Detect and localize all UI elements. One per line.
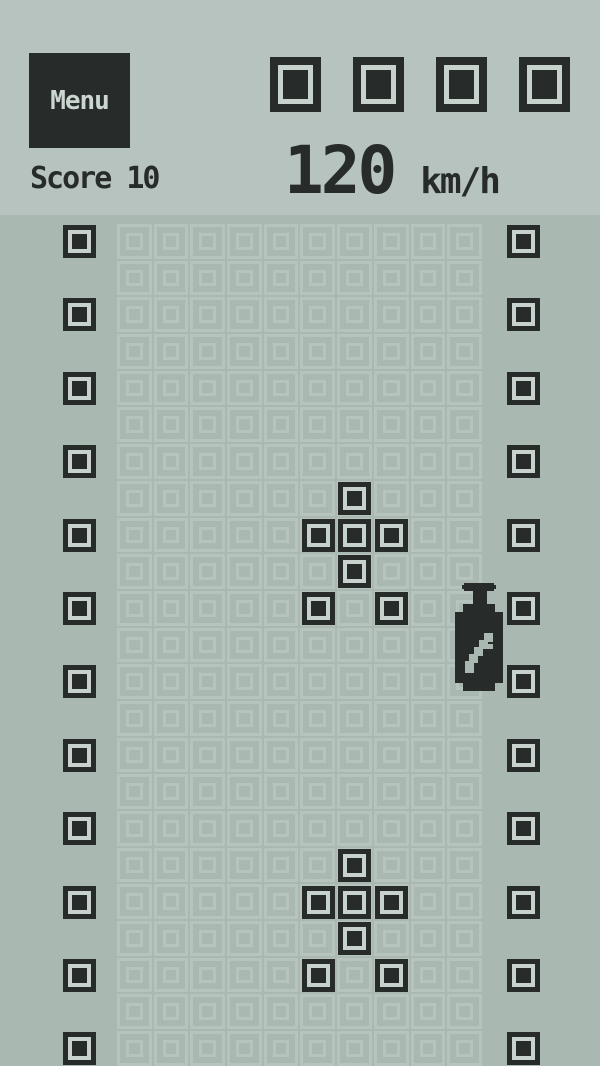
grid-cell <box>263 517 300 554</box>
grid-cell <box>446 773 483 810</box>
grid-cell <box>116 406 153 443</box>
grid-cell <box>226 260 263 297</box>
grid-cell <box>116 993 153 1030</box>
grid-cell <box>299 480 336 517</box>
grid-cell <box>336 1030 373 1066</box>
grid-cell <box>446 1030 483 1066</box>
grid-cell <box>226 296 263 333</box>
grid-cell <box>410 663 447 700</box>
grid-cell <box>153 223 190 260</box>
grid-cell <box>153 1030 190 1066</box>
grid-cell <box>226 957 263 994</box>
grid-cell <box>189 627 226 664</box>
grid-cell <box>189 1030 226 1066</box>
grid-cell <box>189 847 226 884</box>
grid-cell <box>299 333 336 370</box>
grid-cell <box>263 883 300 920</box>
wall-block <box>63 519 96 552</box>
grid-cell <box>373 920 410 957</box>
car-upper-block <box>302 592 335 625</box>
grid-cell <box>263 700 300 737</box>
grid-cell <box>336 443 373 480</box>
grid-cell <box>263 920 300 957</box>
grid-cell <box>336 957 373 994</box>
grid-cell <box>189 517 226 554</box>
grid-cell <box>263 260 300 297</box>
wall-block <box>63 372 96 405</box>
car-upper-block <box>338 555 371 588</box>
game-screen: Menu Score 10 120 km/h <box>0 0 600 1066</box>
grid-cell <box>189 920 226 957</box>
grid-cell <box>153 737 190 774</box>
grid-cell <box>189 296 226 333</box>
grid-cell <box>410 847 447 884</box>
grid-cell <box>116 443 153 480</box>
grid-cell <box>336 627 373 664</box>
grid-cell <box>263 810 300 847</box>
grid-cell <box>189 883 226 920</box>
grid-cell <box>299 406 336 443</box>
wall-block <box>63 959 96 992</box>
grid-cell <box>189 480 226 517</box>
grid-cell <box>336 333 373 370</box>
wall-block <box>63 445 96 478</box>
grid-cell <box>410 737 447 774</box>
grid-cell <box>446 517 483 554</box>
grid-cell <box>153 847 190 884</box>
grid-cell <box>116 370 153 407</box>
grid-cell <box>116 1030 153 1066</box>
grid-cell <box>116 847 153 884</box>
grid-cell <box>116 296 153 333</box>
grid-cell <box>336 993 373 1030</box>
speed-value: 120 <box>284 138 394 204</box>
grid-cell <box>153 260 190 297</box>
grid-cell <box>373 993 410 1030</box>
grid-cell <box>226 993 263 1030</box>
grid-cell <box>336 590 373 627</box>
grid-cell <box>446 480 483 517</box>
speed-display: 120 km/h <box>284 138 499 204</box>
grid-cell <box>263 663 300 700</box>
grid-cell <box>263 370 300 407</box>
grid-cell <box>373 406 410 443</box>
grid-cell <box>226 627 263 664</box>
grid-cell <box>336 810 373 847</box>
grid-cell <box>189 553 226 590</box>
grid-cell <box>263 993 300 1030</box>
grid-cell <box>189 333 226 370</box>
grid-cell <box>410 223 447 260</box>
grid-cell <box>373 223 410 260</box>
car-lower-block <box>302 886 335 919</box>
grid-cell <box>153 296 190 333</box>
grid-cell <box>116 663 153 700</box>
grid-cell <box>410 993 447 1030</box>
grid-cell <box>336 370 373 407</box>
grid-cell <box>299 443 336 480</box>
grid-cell <box>373 663 410 700</box>
grid-cell <box>446 443 483 480</box>
grid-cell <box>446 406 483 443</box>
grid-cell <box>226 847 263 884</box>
grid-cell <box>446 810 483 847</box>
car-lower-block <box>338 886 371 919</box>
grid-cell <box>410 1030 447 1066</box>
grid-cell <box>446 847 483 884</box>
grid-cell <box>189 663 226 700</box>
car-upper-block <box>338 482 371 515</box>
lives <box>270 57 570 112</box>
grid-cell <box>373 480 410 517</box>
grid-cell <box>263 296 300 333</box>
grid-cell <box>299 920 336 957</box>
grid-cell <box>373 627 410 664</box>
grid-cell <box>153 663 190 700</box>
grid-cell <box>263 480 300 517</box>
grid-cell <box>116 957 153 994</box>
wall-block <box>507 665 540 698</box>
grid-cell <box>116 920 153 957</box>
car-upper-block <box>375 519 408 552</box>
grid-cell <box>153 773 190 810</box>
grid-cell <box>116 627 153 664</box>
grid-cell <box>153 627 190 664</box>
grid-cell <box>153 480 190 517</box>
life-icon <box>519 57 570 112</box>
grid-cell <box>299 847 336 884</box>
grid-cell <box>263 1030 300 1066</box>
grid-cell <box>446 333 483 370</box>
wall-block <box>63 812 96 845</box>
grid-cell <box>446 370 483 407</box>
wall-block <box>507 1032 540 1065</box>
grid-cell <box>410 700 447 737</box>
grid-cell <box>116 553 153 590</box>
life-icon <box>270 57 321 112</box>
grid-cell <box>336 773 373 810</box>
grid-cell <box>189 443 226 480</box>
grid-cell <box>189 957 226 994</box>
grid-cell <box>299 993 336 1030</box>
car-lower-block <box>338 849 371 882</box>
grid-cell <box>263 773 300 810</box>
wall-block <box>63 886 96 919</box>
wall-block <box>507 886 540 919</box>
grid-cell <box>226 737 263 774</box>
grid-cell <box>153 406 190 443</box>
grid-cell <box>373 737 410 774</box>
grid-cell <box>153 920 190 957</box>
grid-cell <box>410 883 447 920</box>
grid-cell <box>446 700 483 737</box>
grid-cell <box>189 223 226 260</box>
grid-cell <box>153 700 190 737</box>
grid-cell <box>410 443 447 480</box>
grid-cell <box>153 810 190 847</box>
grid-cell <box>116 517 153 554</box>
grid-cell <box>336 700 373 737</box>
grid-cell <box>373 700 410 737</box>
grid-cell <box>410 260 447 297</box>
wall-block <box>507 445 540 478</box>
grid-cell <box>336 406 373 443</box>
grid-cell <box>373 443 410 480</box>
grid-cell <box>373 553 410 590</box>
grid-cell <box>410 957 447 994</box>
menu-button[interactable]: Menu <box>29 53 130 148</box>
wall-block <box>507 592 540 625</box>
car-lower-block <box>375 959 408 992</box>
grid-cell <box>153 883 190 920</box>
grid-cell <box>373 260 410 297</box>
grid-cell <box>226 333 263 370</box>
grid-cell <box>116 333 153 370</box>
grid-cell <box>116 590 153 627</box>
grid-cell <box>116 773 153 810</box>
grid-cell <box>189 737 226 774</box>
grid-cell <box>299 1030 336 1066</box>
grid-cell <box>299 627 336 664</box>
grid-cell <box>410 810 447 847</box>
grid-cell <box>446 260 483 297</box>
life-icon <box>353 57 404 112</box>
grid-cell <box>263 627 300 664</box>
grid-cell <box>446 883 483 920</box>
grid-cell <box>116 700 153 737</box>
grid-cell <box>336 223 373 260</box>
speed-unit-label: km/h <box>420 164 499 200</box>
grid-cell <box>153 517 190 554</box>
grid-cell <box>336 260 373 297</box>
grid-cell <box>153 370 190 407</box>
grid-cell <box>410 517 447 554</box>
grid-cell <box>226 553 263 590</box>
grid-cell <box>263 553 300 590</box>
nitro-bottle-icon <box>455 581 503 692</box>
wall-block <box>63 225 96 258</box>
grid-cell <box>226 810 263 847</box>
grid-cell <box>446 920 483 957</box>
grid-cell <box>189 993 226 1030</box>
grid-cell <box>263 590 300 627</box>
grid-cell <box>226 517 263 554</box>
grid-cell <box>446 296 483 333</box>
grid-cell <box>153 553 190 590</box>
grid-cell <box>116 260 153 297</box>
wall-block <box>63 1032 96 1065</box>
car-upper-block <box>338 519 371 552</box>
score-label: Score 10 <box>30 161 159 196</box>
grid-cell <box>446 993 483 1030</box>
grid-cell <box>263 737 300 774</box>
grid-cell <box>410 333 447 370</box>
hud-header: Menu Score 10 120 km/h <box>0 0 600 215</box>
grid-cell <box>226 663 263 700</box>
grid-cell <box>226 443 263 480</box>
grid-cell <box>226 480 263 517</box>
grid-cell <box>410 553 447 590</box>
grid-cell <box>410 920 447 957</box>
grid-cell <box>299 663 336 700</box>
grid-cell <box>116 223 153 260</box>
grid-cell <box>226 700 263 737</box>
grid-cell <box>373 847 410 884</box>
wall-block <box>507 519 540 552</box>
wall-block <box>507 225 540 258</box>
grid-cell <box>263 333 300 370</box>
grid-cell <box>373 296 410 333</box>
grid-cell <box>299 810 336 847</box>
grid-cell <box>263 443 300 480</box>
grid-cell <box>153 993 190 1030</box>
lcd-grid <box>116 223 483 1066</box>
wall-block <box>507 959 540 992</box>
grid-cell <box>263 406 300 443</box>
grid-cell <box>116 883 153 920</box>
grid-cell <box>153 443 190 480</box>
grid-cell <box>226 590 263 627</box>
wall-block <box>507 372 540 405</box>
playfield[interactable] <box>0 215 600 1066</box>
grid-cell <box>226 920 263 957</box>
grid-cell <box>153 590 190 627</box>
grid-cell <box>189 590 226 627</box>
grid-cell <box>336 663 373 700</box>
grid-cell <box>116 480 153 517</box>
grid-cell <box>336 296 373 333</box>
grid-cell <box>153 333 190 370</box>
grid-cell <box>446 957 483 994</box>
grid-cell <box>336 737 373 774</box>
wall-block <box>507 739 540 772</box>
grid-cell <box>189 370 226 407</box>
car-lower-block <box>375 886 408 919</box>
grid-cell <box>226 406 263 443</box>
grid-cell <box>446 223 483 260</box>
grid-cell <box>153 957 190 994</box>
grid-cell <box>116 737 153 774</box>
grid-cell <box>299 260 336 297</box>
grid-cell <box>299 737 336 774</box>
grid-cell <box>299 553 336 590</box>
grid-cell <box>410 480 447 517</box>
grid-cell <box>410 406 447 443</box>
grid-cell <box>226 883 263 920</box>
grid-cell <box>373 810 410 847</box>
grid-cell <box>373 773 410 810</box>
grid-cell <box>226 1030 263 1066</box>
grid-cell <box>410 773 447 810</box>
grid-cell <box>226 773 263 810</box>
grid-cell <box>299 223 336 260</box>
car-upper-block <box>375 592 408 625</box>
grid-cell <box>263 223 300 260</box>
grid-cell <box>299 700 336 737</box>
wall-block <box>63 665 96 698</box>
grid-cell <box>299 370 336 407</box>
grid-cell <box>226 223 263 260</box>
grid-cell <box>189 260 226 297</box>
grid-cell <box>410 590 447 627</box>
grid-cell <box>189 810 226 847</box>
wall-block <box>63 298 96 331</box>
grid-cell <box>299 296 336 333</box>
wall-block <box>63 592 96 625</box>
grid-cell <box>373 1030 410 1066</box>
grid-cell <box>410 296 447 333</box>
car-lower-block <box>338 922 371 955</box>
grid-cell <box>446 737 483 774</box>
grid-cell <box>299 773 336 810</box>
grid-cell <box>410 627 447 664</box>
grid-cell <box>189 700 226 737</box>
wall-block <box>507 812 540 845</box>
grid-cell <box>263 957 300 994</box>
grid-cell <box>116 810 153 847</box>
grid-cell <box>189 406 226 443</box>
wall-block <box>63 739 96 772</box>
grid-cell <box>189 773 226 810</box>
grid-cell <box>226 370 263 407</box>
life-icon <box>436 57 487 112</box>
car-upper-block <box>302 519 335 552</box>
grid-cell <box>263 847 300 884</box>
grid-cell <box>373 333 410 370</box>
car-lower-block <box>302 959 335 992</box>
grid-cell <box>410 370 447 407</box>
grid-cell <box>373 370 410 407</box>
wall-block <box>507 298 540 331</box>
